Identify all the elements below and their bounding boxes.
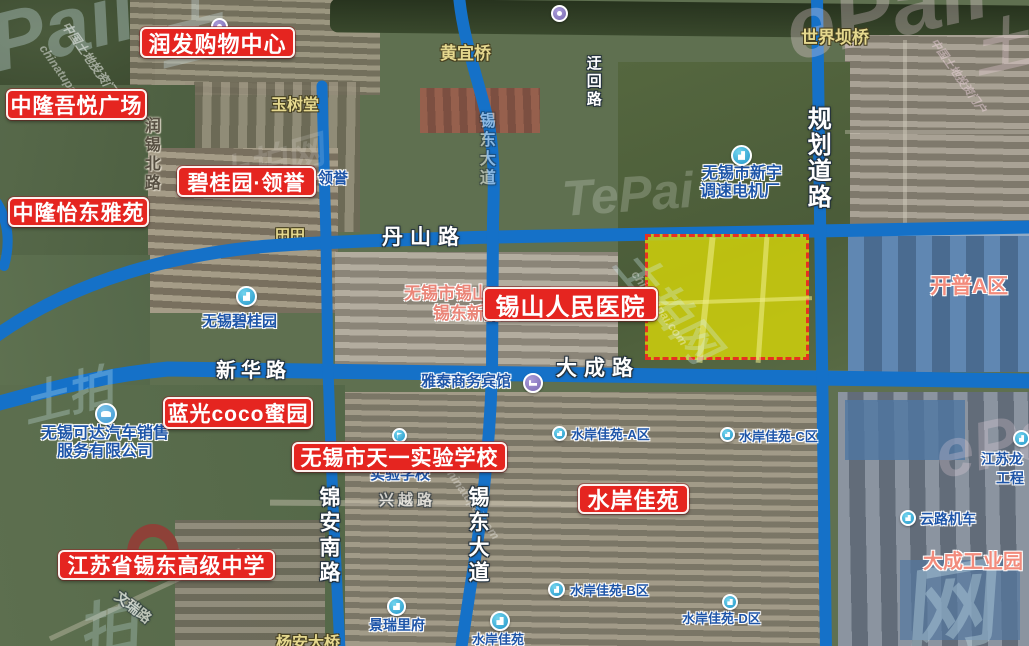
poi-name-label: 水岸佳苑: [472, 633, 524, 646]
poi-name-label: 云路机车: [920, 512, 976, 527]
road-name-label-vertical: 锡东大道: [466, 486, 488, 586]
building-poi-icon: [552, 426, 567, 441]
building-glyph: [727, 599, 732, 605]
red-map-label: 水岸佳苑: [578, 484, 689, 514]
building-poi-icon: [900, 510, 916, 526]
red-map-label: 中隆吾悦广场: [6, 89, 147, 120]
highlighted-parcel[interactable]: [645, 234, 809, 360]
road-planned: [817, 0, 826, 646]
poi-name-label: 无锡可达汽车销售: [41, 426, 169, 443]
building-poi-icon: [722, 594, 738, 610]
building-glyph: [554, 586, 560, 593]
place-name-label: 玉树堂: [271, 98, 319, 115]
road-name-label: 丹山路: [382, 227, 466, 249]
road-name-label-vertical: 规划道路: [804, 106, 829, 210]
minor-road-name-label: 兴越路: [379, 493, 436, 509]
place-name-label: 世界坝桥: [801, 29, 869, 47]
bed-poi-icon: [523, 373, 543, 393]
poi-name-label: 景瑞里府: [369, 618, 425, 633]
poi-name-label: 无锡碧桂园: [202, 314, 277, 330]
building-glyph: [725, 432, 730, 438]
building-glyph: [393, 603, 400, 611]
road-stub-left: [0, 203, 8, 266]
red-map-label: 碧桂园·领誉: [177, 166, 316, 197]
poi-name-label: 水岸佳苑-A区: [571, 428, 650, 442]
road-name-label: 新华路: [216, 361, 291, 382]
satellite-map[interactable]: 润发购物中心中隆吾悦广场碧桂园·领誉中隆怡东雅苑锡山人民医院蓝光coco蜜园无锡…: [0, 0, 1029, 646]
building-poi-icon: [548, 581, 565, 598]
area-name-label: 开普A区: [930, 276, 1008, 298]
building-glyph: [557, 431, 562, 437]
flag-poi-icon: [392, 428, 407, 443]
poi-name-label: 水岸佳苑-C区: [739, 430, 818, 444]
building-glyph: [243, 292, 251, 301]
poi-name-label: 调速电机厂: [700, 184, 780, 201]
car-glyph: [101, 411, 111, 416]
building-glyph: [1019, 435, 1025, 442]
red-map-label: 润发购物中心: [140, 27, 295, 58]
area-name-label: 大成工业园: [923, 552, 1023, 573]
car-poi-icon: [95, 403, 117, 425]
red-map-label: 锡山人民医院: [483, 287, 658, 321]
red-map-label: 蓝光coco蜜园: [163, 397, 313, 429]
building-poi-icon: [490, 611, 510, 631]
building-poi-icon: [731, 145, 752, 166]
poi-name-label: 水岸佳苑-B区: [570, 584, 649, 598]
purple-glyph: [557, 11, 563, 17]
building-glyph: [496, 617, 503, 625]
building-poi-icon: [387, 597, 406, 616]
poi-name-label: 水岸佳苑-D区: [682, 612, 761, 626]
red-map-label: 无锡市天一实验学校: [292, 442, 507, 472]
poi-name-label: 雅泰商务宾馆: [421, 374, 511, 390]
red-map-label: 中隆怡东雅苑: [8, 197, 149, 227]
red-map-label: 江苏省锡东高级中学: [58, 550, 275, 580]
road-name-label-vertical: 锦安南路: [317, 486, 339, 586]
building-poi-icon: [720, 427, 735, 442]
road-name-label: 大成路: [556, 358, 640, 380]
hospital-poi-label: 无锡市锡山: [404, 285, 489, 303]
poi-name-label: 无锡市新宇: [702, 166, 782, 183]
purple-poi-icon: [551, 5, 568, 22]
place-name-label: 黄宜桥: [440, 45, 491, 63]
poi-name-label: 江苏龙: [981, 452, 1023, 467]
building-glyph: [905, 515, 910, 521]
poi-name-label: 工程: [996, 471, 1024, 486]
building-poi-icon: [236, 286, 257, 307]
poi-name-label: 服务有限公司: [57, 444, 153, 461]
road-name-label-vertical: 迂回路: [585, 55, 601, 109]
flag-glyph: [397, 432, 403, 438]
building-poi-icon: [1013, 430, 1029, 447]
parcel-field-line: [648, 296, 812, 306]
road-name-label-vertical: 锡东大道: [476, 112, 493, 188]
building-glyph: [738, 151, 746, 160]
road-xinhua-dacheng: [0, 369, 1029, 404]
place-name-label: 杨安大桥: [276, 636, 340, 646]
road-name-label-vertical: 润锡北路: [141, 117, 158, 193]
bed-glyph: [529, 380, 538, 386]
